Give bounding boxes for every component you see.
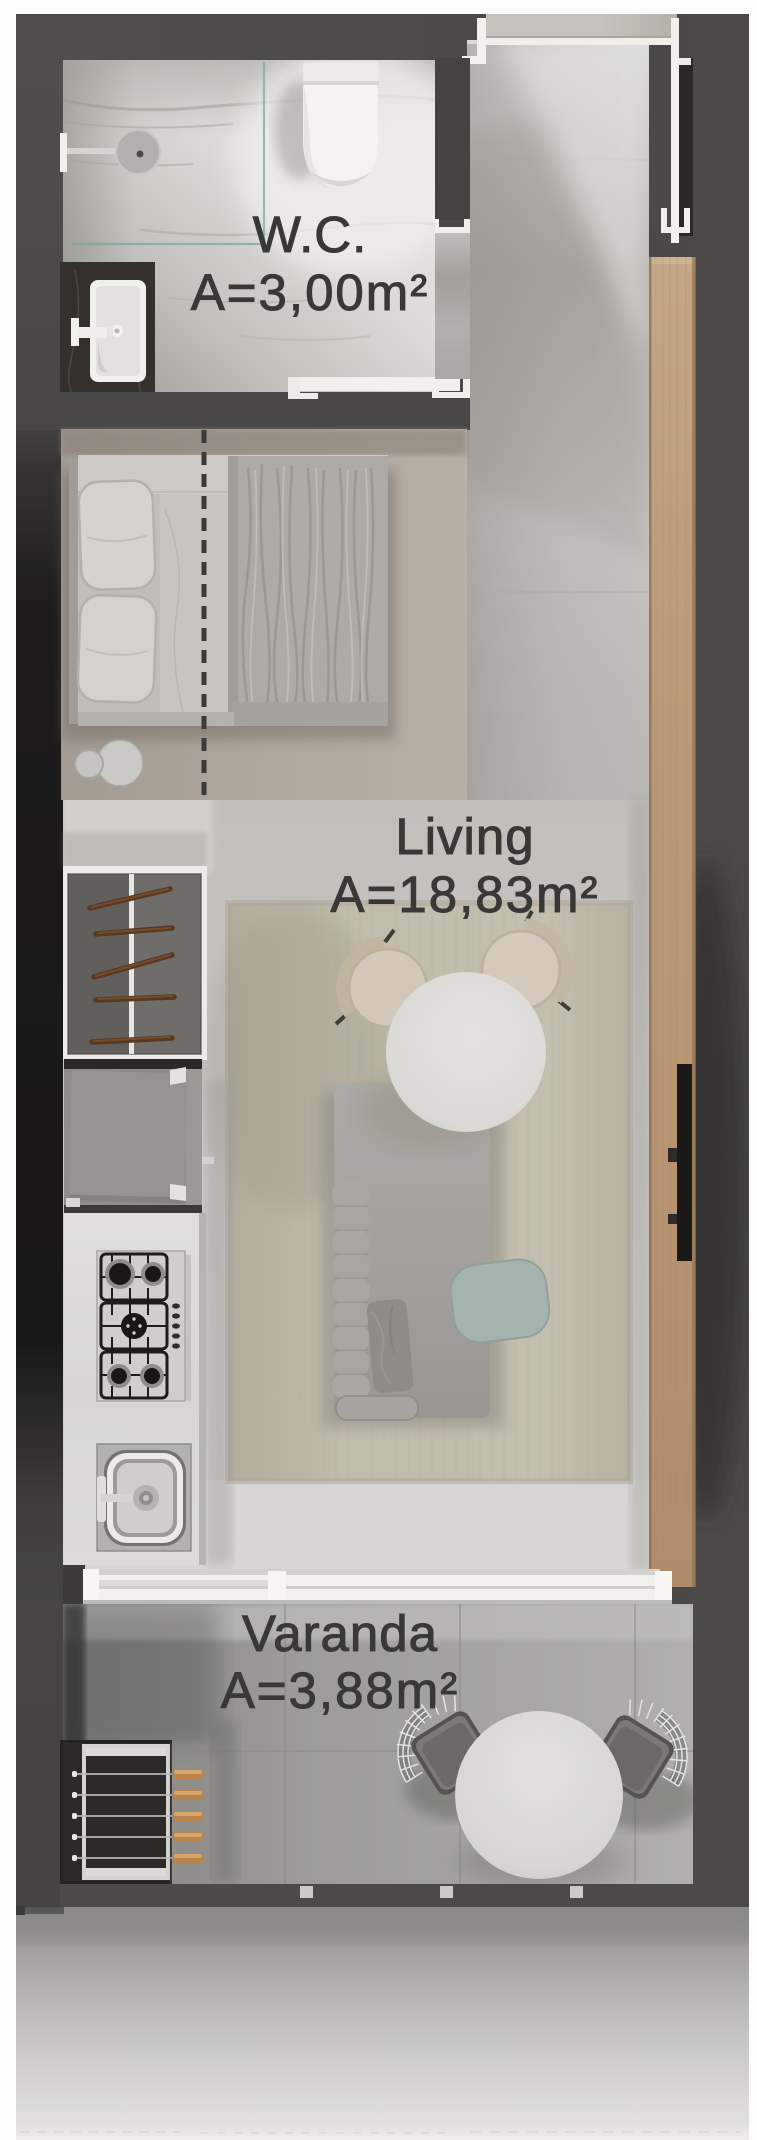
svg-text:W.C.: W.C. xyxy=(253,206,368,263)
svg-text:A=3,88m²: A=3,88m² xyxy=(221,1662,460,1719)
svg-text:A=3,00m²: A=3,00m² xyxy=(191,264,430,321)
svg-text:Living: Living xyxy=(395,808,534,865)
svg-text:Varanda: Varanda xyxy=(242,1605,438,1662)
svg-text:A=18,83m²: A=18,83m² xyxy=(331,866,600,923)
